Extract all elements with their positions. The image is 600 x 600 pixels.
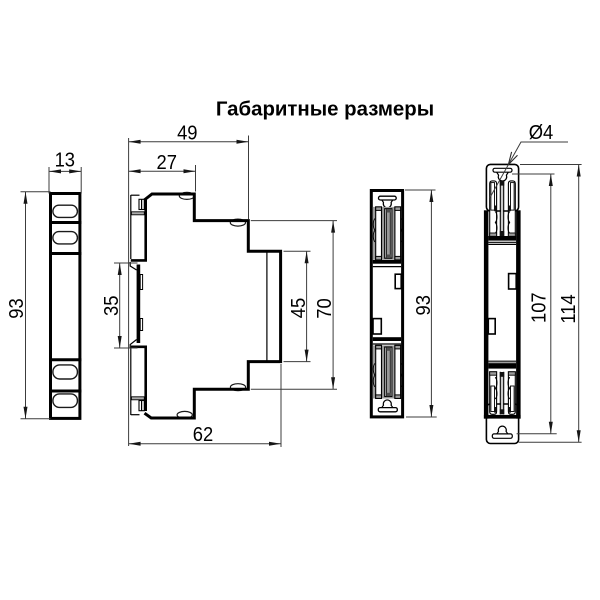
- svg-text:45: 45: [289, 298, 311, 318]
- svg-text:35: 35: [101, 296, 123, 316]
- svg-text:13: 13: [55, 150, 75, 172]
- svg-text:49: 49: [177, 123, 197, 145]
- svg-text:114: 114: [558, 294, 580, 324]
- svg-text:Габаритные размеры: Габаритные размеры: [216, 99, 434, 121]
- svg-text:70: 70: [314, 298, 336, 318]
- svg-text:62: 62: [193, 424, 213, 446]
- svg-text:107: 107: [529, 292, 551, 323]
- svg-text:27: 27: [156, 152, 176, 174]
- svg-text:Ø4: Ø4: [529, 122, 554, 144]
- svg-text:93: 93: [6, 298, 28, 318]
- svg-text:93: 93: [413, 295, 435, 315]
